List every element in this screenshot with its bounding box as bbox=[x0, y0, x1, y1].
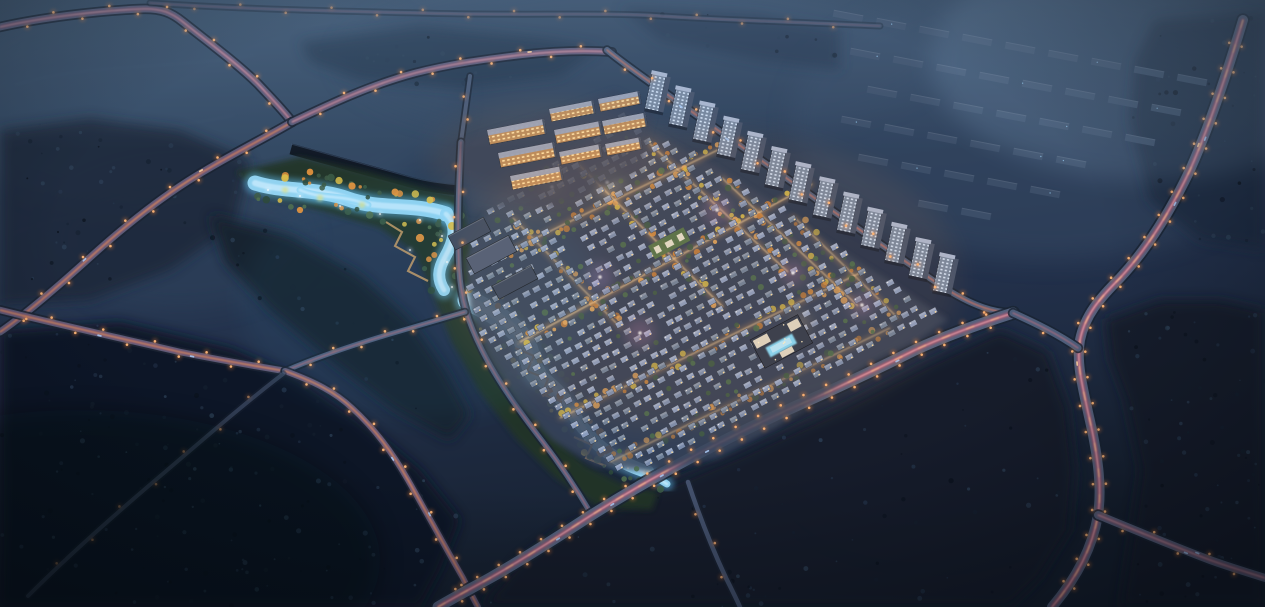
aerial-night-masterplan-rendering bbox=[0, 0, 1265, 607]
vignette bbox=[0, 0, 1265, 607]
fx-layer bbox=[0, 0, 1265, 607]
rendering-viewport bbox=[0, 0, 1265, 607]
